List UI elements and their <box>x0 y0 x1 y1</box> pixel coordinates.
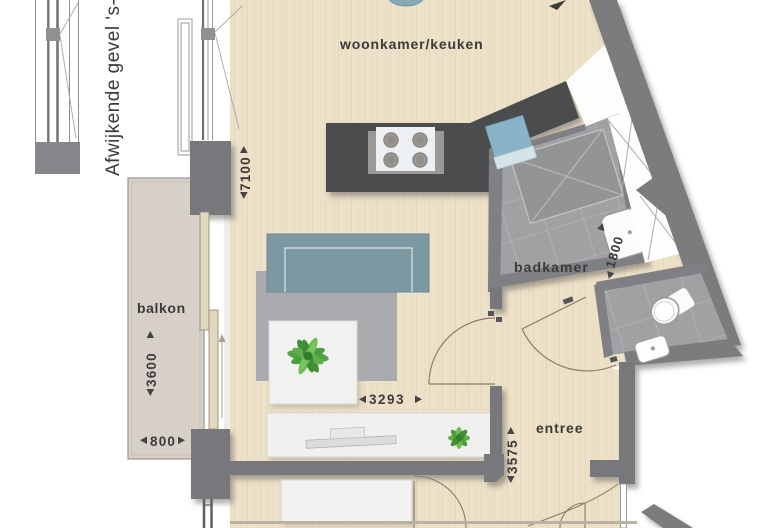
svg-text:3600: 3600 <box>144 352 159 387</box>
svg-text:7100: 7100 <box>238 156 253 191</box>
svg-text:3293: 3293 <box>369 392 405 407</box>
svg-text:3575: 3575 <box>505 439 520 474</box>
svg-text:800: 800 <box>150 434 176 449</box>
svg-text:balkon: balkon <box>137 300 186 316</box>
svg-text:woonkamer/keuken: woonkamer/keuken <box>339 36 484 52</box>
svg-text:entree: entree <box>536 420 583 436</box>
svg-text:badkamer: badkamer <box>514 259 589 275</box>
svg-text:Afwijkende gevel 's-: Afwijkende gevel 's- <box>103 0 124 176</box>
